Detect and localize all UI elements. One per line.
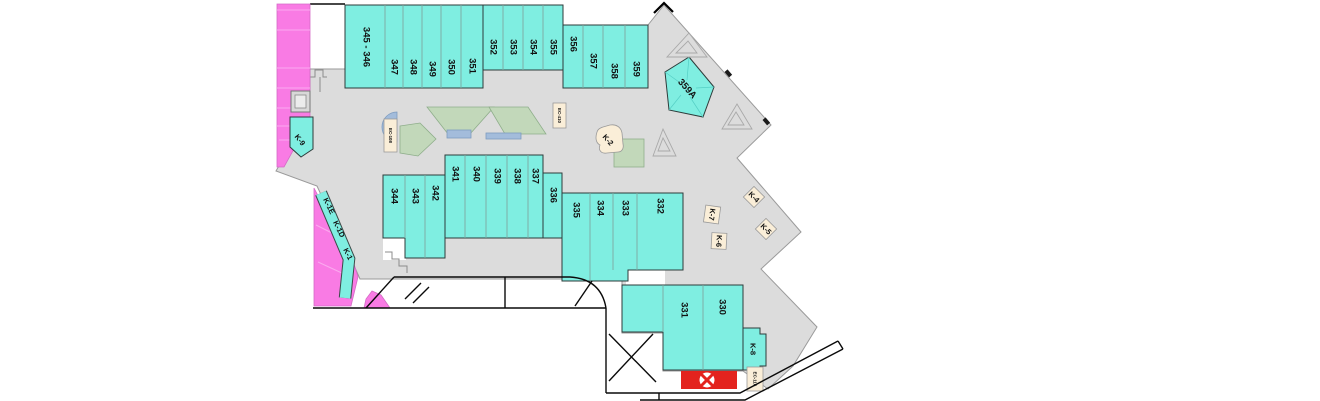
store-352-label: 352 bbox=[488, 39, 499, 55]
equipment-ec108-label: EC-108 bbox=[388, 128, 393, 143]
store-356-label: 356 bbox=[568, 36, 579, 52]
mall-floorplan: K-1E K-1D K-1 K-9 345 - 346 347 348 349 … bbox=[0, 0, 1320, 401]
store-343-label: 343 bbox=[410, 188, 421, 204]
planter-water-1 bbox=[447, 130, 471, 138]
kiosk-k6-label: K-6 bbox=[714, 235, 724, 248]
store-block-331-330[interactable] bbox=[622, 285, 743, 370]
store-351-label: 351 bbox=[467, 58, 478, 75]
store-349-label: 349 bbox=[427, 61, 438, 77]
store-336-label: 336 bbox=[548, 187, 559, 203]
kiosk-k8[interactable]: K-8 bbox=[743, 328, 766, 370]
elevator-icon bbox=[291, 91, 310, 112]
store-333-label: 333 bbox=[620, 200, 631, 216]
store-334-label: 334 bbox=[595, 200, 606, 217]
red-x-marker bbox=[681, 371, 737, 389]
kiosk-k2[interactable]: K-2 bbox=[596, 125, 623, 153]
store-341-label: 341 bbox=[450, 166, 461, 183]
kiosk-k6[interactable]: K-6 bbox=[711, 233, 727, 250]
store-331-label: 331 bbox=[679, 302, 690, 319]
store-348-label: 348 bbox=[408, 59, 419, 75]
store-block-356-359[interactable] bbox=[563, 25, 648, 88]
store-353-label: 353 bbox=[508, 39, 519, 55]
store-330-label: 330 bbox=[717, 299, 728, 315]
equipment-ec410-label: EC-410 bbox=[557, 108, 562, 123]
store-337-label: 337 bbox=[530, 168, 541, 184]
store-336[interactable]: 336 bbox=[543, 173, 562, 238]
store-338-label: 338 bbox=[512, 168, 523, 184]
kiosk-k8-label: K-8 bbox=[749, 343, 758, 355]
store-342-label: 342 bbox=[430, 185, 441, 201]
store-block-352-355[interactable] bbox=[483, 5, 563, 70]
store-332-label: 332 bbox=[655, 198, 666, 214]
store-354-label: 354 bbox=[528, 39, 539, 56]
store-350-label: 350 bbox=[446, 59, 457, 75]
store-359-label: 359 bbox=[631, 61, 642, 77]
kiosk-k7[interactable]: K-7 bbox=[703, 205, 720, 224]
floor-cutout bbox=[626, 270, 665, 285]
equipment-ec108: EC-108 bbox=[384, 119, 397, 152]
store-357-label: 357 bbox=[588, 53, 599, 69]
store-345-346-label: 345 - 346 bbox=[361, 27, 372, 67]
equipment-ec410: EC-410 bbox=[553, 103, 566, 128]
store-335-label: 335 bbox=[571, 202, 582, 219]
kiosk-k7-label: K-7 bbox=[707, 208, 718, 221]
floor-cutout bbox=[383, 238, 406, 260]
store-358-label: 358 bbox=[609, 63, 620, 79]
planter-water-2 bbox=[486, 133, 521, 139]
store-355-label: 355 bbox=[548, 39, 559, 56]
store-344-label: 344 bbox=[389, 188, 400, 205]
store-347-label: 347 bbox=[389, 59, 400, 75]
store-339-label: 339 bbox=[492, 168, 503, 184]
store-340-label: 340 bbox=[471, 166, 482, 182]
